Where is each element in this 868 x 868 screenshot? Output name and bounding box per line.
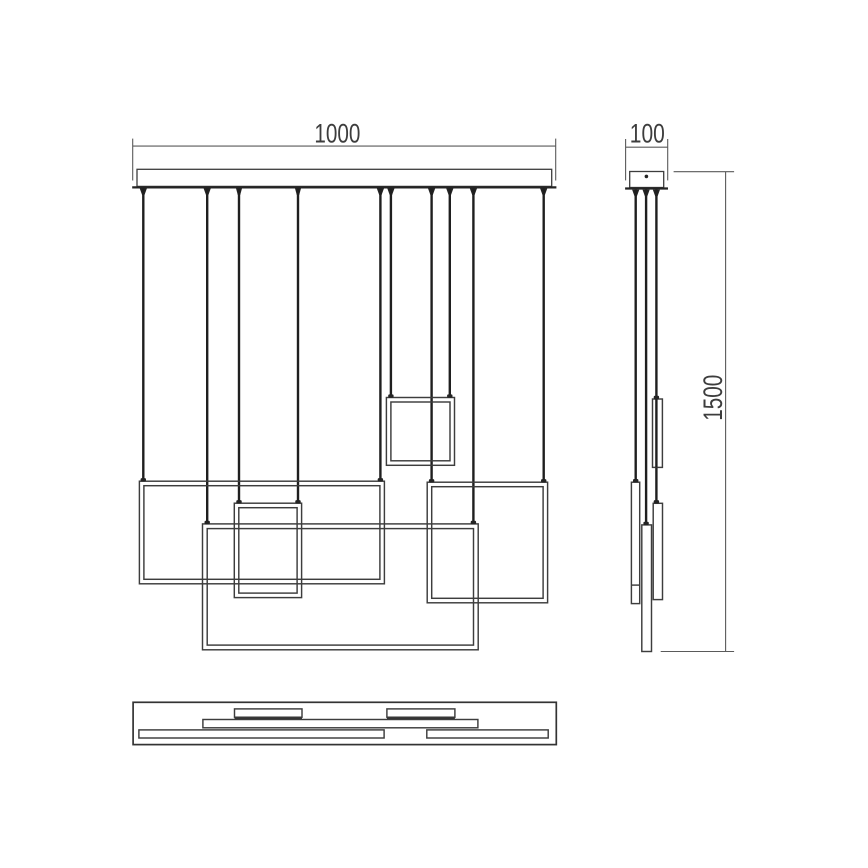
svg-text:1000: 1000 — [314, 119, 360, 149]
svg-text:100: 100 — [630, 119, 665, 149]
svg-text:1500: 1500 — [698, 375, 728, 421]
